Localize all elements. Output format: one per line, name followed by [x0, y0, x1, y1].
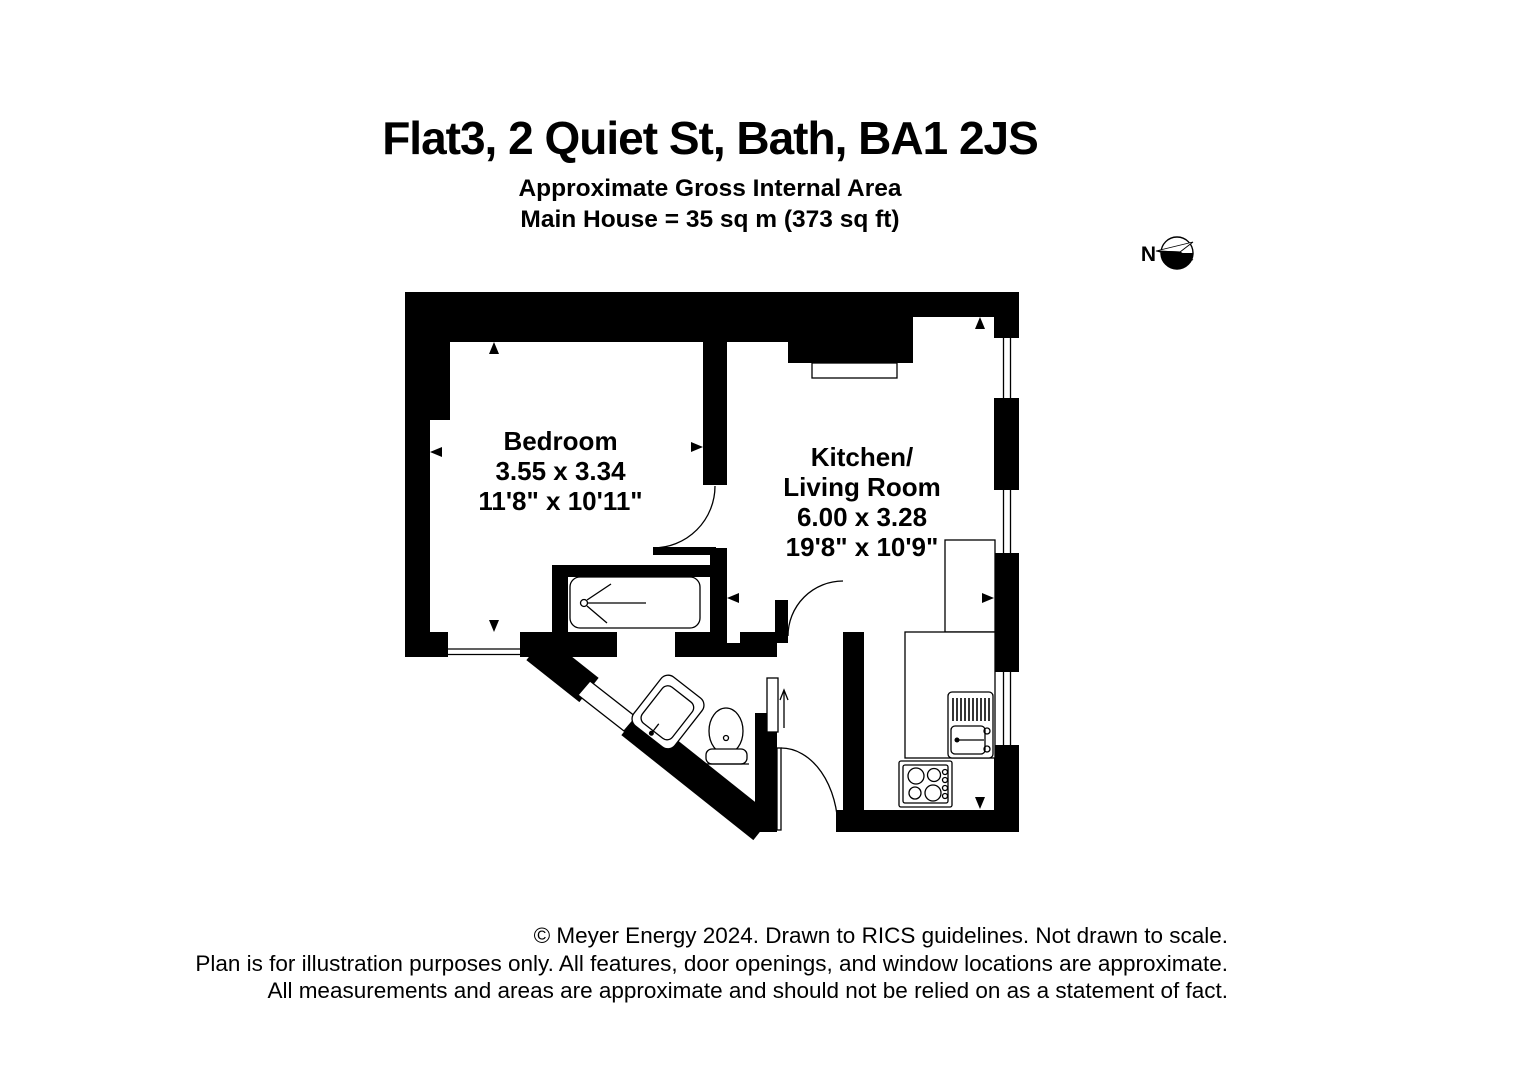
window-right-1 — [994, 338, 1019, 398]
kitchen-arrow-down — [975, 797, 985, 809]
bath — [570, 577, 700, 628]
bedroom-arrow-right — [691, 442, 703, 452]
window-right-3 — [994, 672, 1019, 745]
bathroom-door-leaf — [578, 681, 636, 731]
kitchen-arrow-up — [975, 317, 985, 329]
bedroom-arrow-up — [489, 342, 499, 354]
kitchen-sink-unit — [948, 692, 993, 758]
window-bedroom-bottom — [448, 649, 520, 655]
bedroom-arrow-down — [489, 620, 499, 632]
kitchen-arrow-left — [727, 593, 739, 603]
floor-plan: N — [0, 0, 1528, 1080]
sliding-door — [767, 678, 788, 732]
cupboard — [812, 363, 897, 378]
north-arrow: N — [1141, 237, 1193, 269]
direction-arrow — [780, 690, 788, 728]
window-right-2 — [994, 490, 1019, 553]
bedroom-arrow-left — [430, 447, 442, 457]
hob — [899, 761, 952, 807]
bedroom-door-arc — [653, 486, 715, 548]
entrance-door — [777, 748, 838, 830]
kitchen-door-arc — [788, 581, 843, 636]
north-label: N — [1141, 243, 1156, 266]
